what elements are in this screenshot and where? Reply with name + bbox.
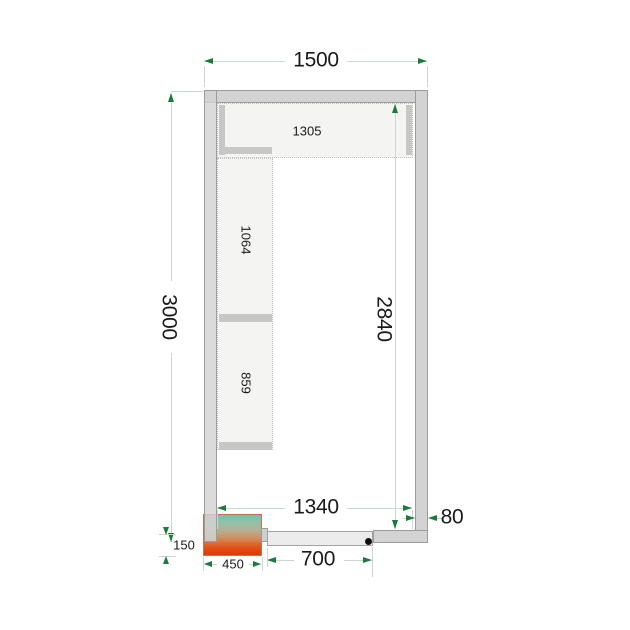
shelf-left-upper-length-label: 1064 [240, 226, 253, 255]
dim-arrow-right-icon [363, 557, 372, 563]
dim-label-unit-protrusion: 150 [173, 539, 195, 552]
dim-line [218, 508, 285, 509]
dim-extension-line [171, 91, 203, 92]
dim-arrow-left-icon [217, 505, 226, 511]
dim-arrow-up-icon [168, 93, 174, 102]
dim-label-outer-depth: 3000 [159, 294, 180, 340]
dim-arrow-left-icon [428, 515, 437, 521]
dim-arrow-left-icon [204, 561, 212, 567]
dim-extension-line [267, 548, 268, 567]
dim-line [205, 61, 285, 62]
dim-extension-line [204, 66, 205, 87]
shelf-top-length-label: 1305 [293, 125, 322, 138]
dim-arrow-left-icon [267, 557, 276, 563]
shelf-edge-strip [219, 147, 272, 154]
dim-label-wall-thickness: 80 [441, 507, 464, 528]
shelf-edge-strip [219, 442, 272, 450]
dim-extension-line [427, 66, 428, 87]
door-pivot-dot [365, 538, 372, 545]
shelf-left-lower-length-label: 859 [240, 372, 253, 394]
dim-label-outer-width: 1500 [293, 50, 339, 71]
wall-right [415, 90, 428, 543]
cold-room-plan-drawing: 1305 1064 859 1500 3000 2840 1340 80 700… [0, 0, 630, 630]
dim-arrow-right-icon [253, 561, 261, 567]
dim-arrow-down-icon [392, 520, 398, 529]
dim-label-door-width: 700 [301, 549, 335, 570]
dim-arrow-right-icon [403, 505, 412, 511]
door-leaf [267, 531, 373, 546]
dim-arrow-up-icon [392, 104, 398, 113]
wall-left [204, 90, 217, 542]
dim-extension-line [203, 557, 204, 571]
dim-arrow-right-icon [418, 58, 427, 64]
dim-extension-line [217, 510, 218, 529]
dim-arrow-up-icon [163, 556, 169, 564]
dim-line [347, 61, 427, 62]
dim-arrow-down-icon [163, 527, 169, 535]
shelf-edge-strip [219, 314, 272, 322]
dim-extension-line [262, 557, 263, 571]
dim-line [171, 353, 172, 542]
dim-line [171, 94, 172, 281]
wall-bottom [373, 530, 428, 543]
shelf-left-run [217, 158, 273, 450]
dim-label-unit-width: 450 [222, 558, 244, 571]
dim-label-inner-width: 1340 [291, 497, 341, 518]
wall-top [204, 90, 428, 103]
shelf-edge-strip [406, 105, 412, 155]
dim-extension-line [372, 547, 373, 577]
dim-arrow-right-icon [406, 515, 415, 521]
dim-arrow-left-icon [204, 58, 213, 64]
dim-label-inner-depth: 2840 [374, 296, 395, 342]
